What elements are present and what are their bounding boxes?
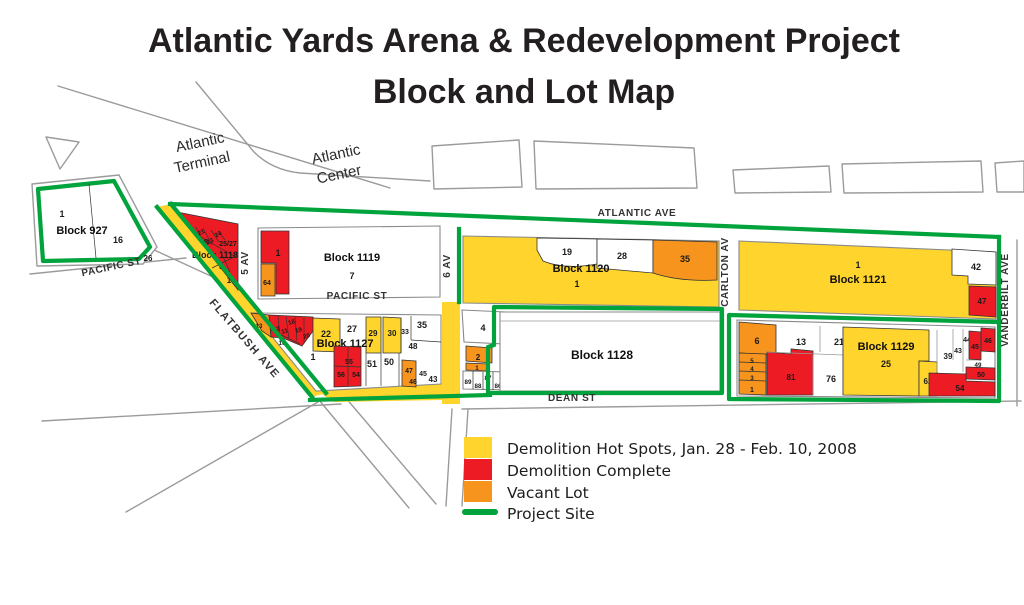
block-1119: 1 64 Block 1119 7 <box>258 226 440 299</box>
block-1121-name: Block 1121 <box>830 274 887 286</box>
block-1129-name: Block 1129 <box>858 341 915 353</box>
lot-1119-1: 1 <box>275 248 280 258</box>
street-label-carlton-ave: CARLTON AV <box>720 237 731 307</box>
sixth-ave-hotspot-strip <box>442 302 460 404</box>
lot-1127-29: 29 <box>369 329 378 338</box>
lot-927-1: 1 <box>59 209 64 219</box>
street-label-atlantic-ave: ATLANTIC AVE <box>598 208 677 219</box>
lot-1127-46: 46 <box>409 379 417 386</box>
lot-1128-88: 88 <box>475 383 482 390</box>
lot-1120-1: 1 <box>574 279 579 289</box>
lot-1129-50: 50 <box>977 372 985 379</box>
lot-1129-43: 43 <box>954 348 962 355</box>
lot-1129-1: 1 <box>750 387 754 394</box>
block-lot-map-page: Atlantic Yards Arena & Redevelopment Pro… <box>0 0 1024 605</box>
map-title-line1: Atlantic Yards Arena & Redevelopment Pro… <box>148 22 900 60</box>
street-label-fifth-ave: 5 AV <box>240 251 251 275</box>
north-block-5 <box>995 161 1024 192</box>
legend-swatch-project-site <box>462 509 498 515</box>
lot-1129-4: 4 <box>750 366 754 373</box>
legend: Demolition Hot Spots, Jan. 28 - Feb. 10,… <box>462 437 857 523</box>
lot-1121-1: 1 <box>855 260 860 270</box>
map-title-line2: Block and Lot Map <box>373 73 675 111</box>
lot-1127-43: 43 <box>429 375 438 384</box>
fifth-ave-lower-curb <box>126 402 318 512</box>
street-label-pacific-east: PACIFIC ST <box>327 291 388 302</box>
legend-swatch-complete <box>464 459 492 480</box>
street-label-dean-st: DEAN ST <box>548 393 596 404</box>
north-block-1 <box>432 140 522 189</box>
lot-1129-6: 6 <box>754 336 759 346</box>
sixth-ave-lower-curb-1 <box>446 409 452 506</box>
north-block-3 <box>733 166 831 193</box>
lot-1120-28: 28 <box>617 251 627 261</box>
block-lot-map-svg: Atlantic Yards Arena & Redevelopment Pro… <box>0 0 1024 605</box>
block-1128: Block 1128 <box>500 312 720 391</box>
lot-1127-35: 35 <box>417 320 427 330</box>
lot-1121-47: 47 <box>978 297 987 306</box>
block-1119-name: Block 1119 <box>324 252 380 264</box>
street-label-vanderbilt-ave: VANDERBILT AVE <box>1000 253 1011 347</box>
block-927-name: Block 927 <box>56 225 107 237</box>
lot-1129-54: 54 <box>956 384 965 393</box>
block-1129: 6 5 4 3 1 81 13 21 76 Block 1129 25 62 3… <box>737 320 995 398</box>
lot-1127-1: 1 <box>310 352 315 362</box>
lot-1128-2: 2 <box>476 353 481 362</box>
lot-1129-3: 3 <box>750 375 754 382</box>
lot-1127-54: 54 <box>352 372 360 379</box>
north-block-4 <box>842 161 983 193</box>
lot-1129-45: 45 <box>971 344 979 351</box>
street-island-triangle <box>46 137 79 169</box>
block-927: 1 Block 927 16 26 <box>32 175 157 266</box>
lot-927-16: 16 <box>113 235 123 245</box>
lot-1127-55: 55 <box>345 359 353 366</box>
lot-1127-45: 45 <box>419 371 427 378</box>
lot-1129-46: 46 <box>984 338 992 345</box>
lot-1128-89: 89 <box>465 379 472 386</box>
lot-1120-35: 35 <box>680 254 690 264</box>
block-1120-name: Block 1120 <box>553 263 610 275</box>
legend-swatch-hotspot <box>464 437 492 458</box>
lot-1119-64: 64 <box>263 280 271 287</box>
lot-1127-33: 33 <box>401 329 409 336</box>
lot-1129-76: 76 <box>826 374 836 384</box>
lot-1128-4: 4 <box>480 323 485 333</box>
dean-west-curb <box>42 404 341 421</box>
block-1121: 1 Block 1121 42 47 <box>739 241 996 319</box>
lot-1127-30: 30 <box>388 329 397 338</box>
lot-1129-81-shape <box>767 349 813 395</box>
lot-1129-39: 39 <box>944 352 953 361</box>
block-1120: 19 28 35 Block 1120 1 <box>463 236 719 307</box>
lot-1121-42: 42 <box>971 262 981 272</box>
lot-1129-81: 81 <box>787 373 796 382</box>
street-label-sixth-ave: 6 AV <box>442 254 453 278</box>
lot-1129-21: 21 <box>834 337 844 347</box>
lot-1127-47: 47 <box>405 368 413 375</box>
lot-1118-25-27: 25/27 <box>219 241 237 248</box>
lot-1127-56: 56 <box>337 372 345 379</box>
north-block-2 <box>534 141 697 189</box>
block-1128-name: Block 1128 <box>571 348 633 362</box>
lot-1129-25: 25 <box>881 359 891 369</box>
lot-1127-51: 51 <box>367 359 377 369</box>
lot-1127-50: 50 <box>384 357 394 367</box>
legend-label-project-site: Project Site <box>507 505 595 523</box>
lot-1129-13: 13 <box>796 337 806 347</box>
flatbush-lower-curb-1 <box>319 400 409 508</box>
flatbush-lower-curb-2 <box>345 397 436 504</box>
legend-swatch-vacant <box>464 481 492 502</box>
lot-1127-48: 48 <box>409 342 418 351</box>
legend-label-complete: Demolition Complete <box>507 462 671 480</box>
legend-label-hotspot: Demolition Hot Spots, Jan. 28 - Feb. 10,… <box>507 440 857 458</box>
lot-1119-7: 7 <box>349 271 354 281</box>
lot-1129-5: 5 <box>750 358 754 365</box>
legend-label-vacant: Vacant Lot <box>507 484 589 502</box>
lot-1127-27: 27 <box>347 324 357 334</box>
lot-1120-19: 19 <box>562 247 572 257</box>
lot-927-26: 26 <box>144 254 153 263</box>
